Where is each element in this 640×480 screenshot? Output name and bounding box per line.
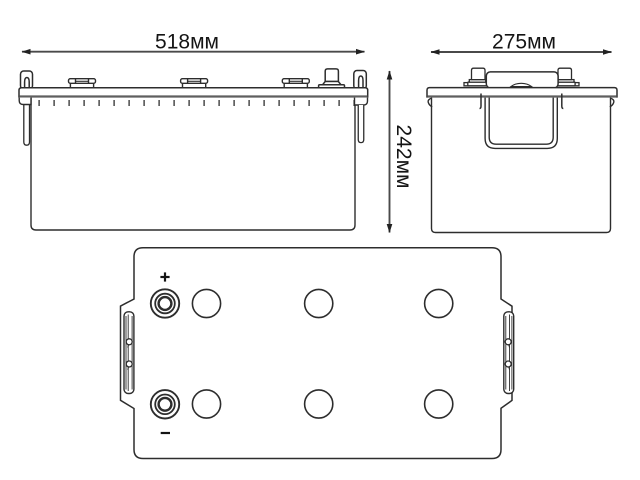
svg-text:275мм: 275мм xyxy=(492,31,556,54)
svg-text:242мм: 242мм xyxy=(392,125,415,189)
svg-text:518мм: 518мм xyxy=(155,31,219,54)
